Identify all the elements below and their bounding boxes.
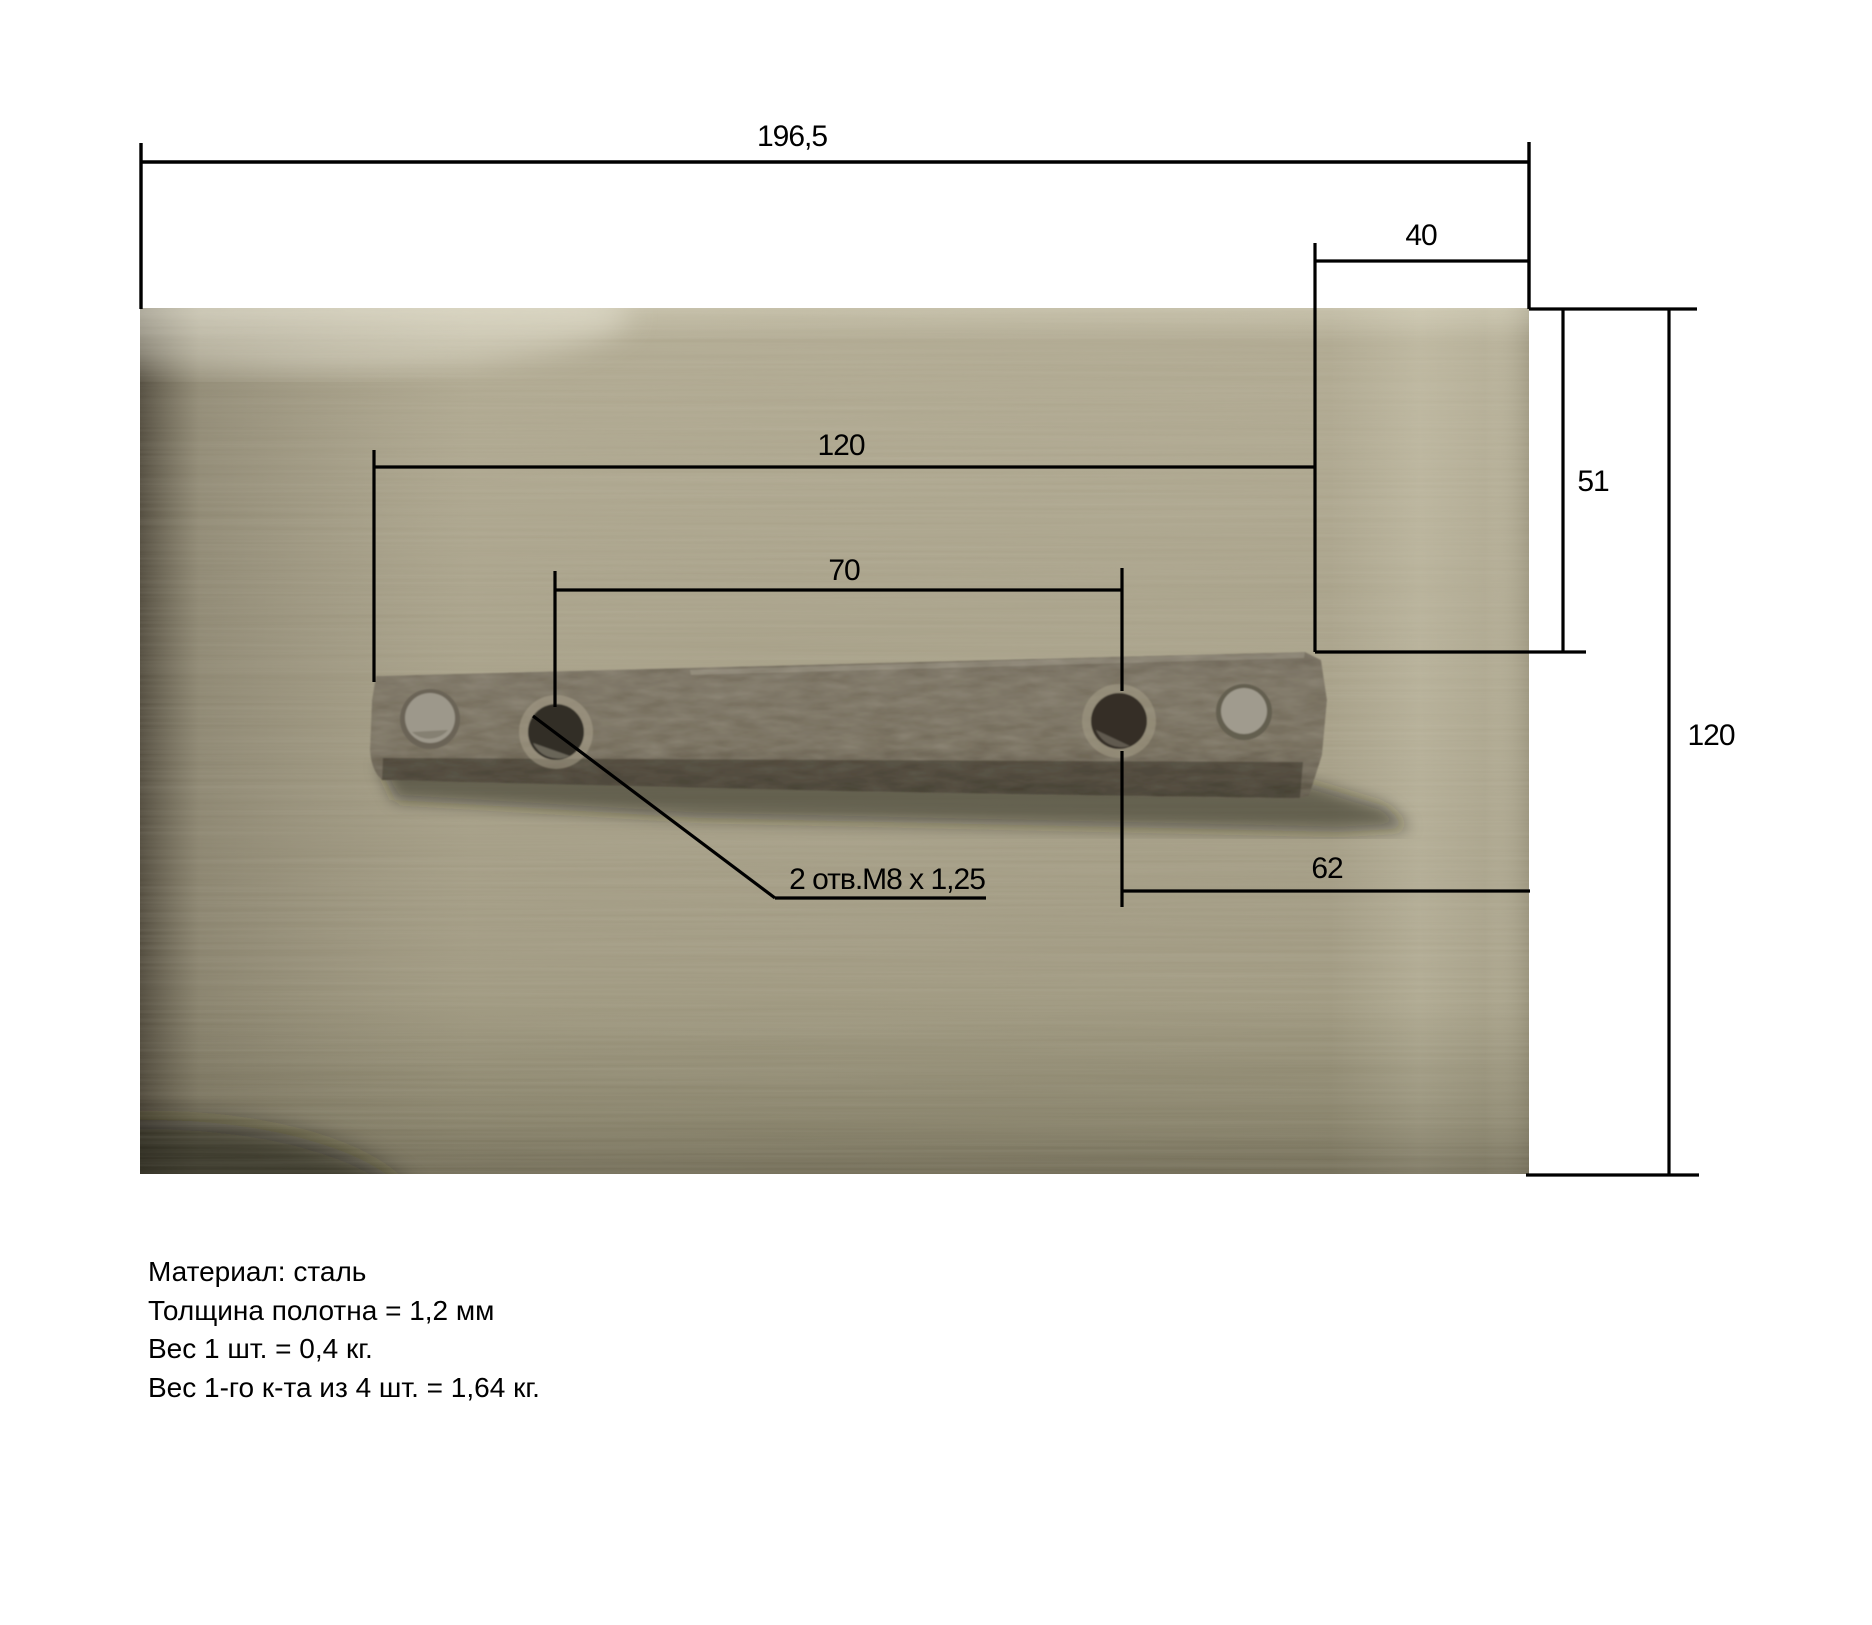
svg-text:Толщина полотна = 1,2 мм: Толщина полотна = 1,2 мм <box>148 1295 494 1326</box>
svg-text:120: 120 <box>1687 719 1734 752</box>
svg-text:2 отв.М8 х 1,25: 2 отв.М8 х 1,25 <box>789 863 985 896</box>
svg-text:62: 62 <box>1311 852 1343 885</box>
svg-text:Вес 1 шт. = 0,4 кг.: Вес 1 шт. = 0,4 кг. <box>148 1333 373 1364</box>
svg-text:70: 70 <box>828 554 860 587</box>
svg-text:120: 120 <box>817 429 864 462</box>
svg-text:Вес 1-го к-та из 4 шт. = 1,64: Вес 1-го к-та из 4 шт. = 1,64 кг. <box>148 1372 540 1403</box>
svg-text:51: 51 <box>1577 465 1609 498</box>
svg-text:40: 40 <box>1405 219 1437 252</box>
svg-text:Материал: сталь: Материал: сталь <box>148 1256 366 1287</box>
svg-text:196,5: 196,5 <box>757 120 827 153</box>
